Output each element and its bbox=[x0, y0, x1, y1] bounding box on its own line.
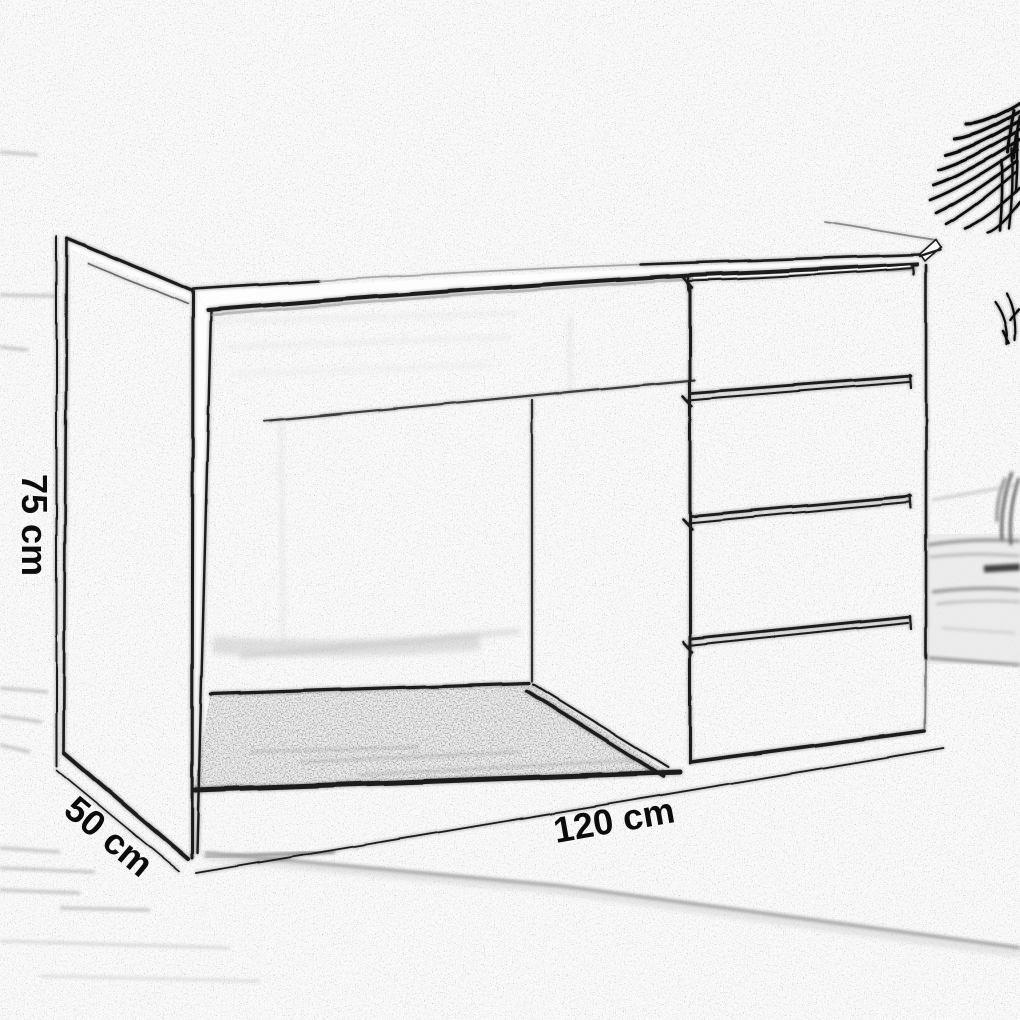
svg-text:75 cm: 75 cm bbox=[14, 474, 55, 576]
